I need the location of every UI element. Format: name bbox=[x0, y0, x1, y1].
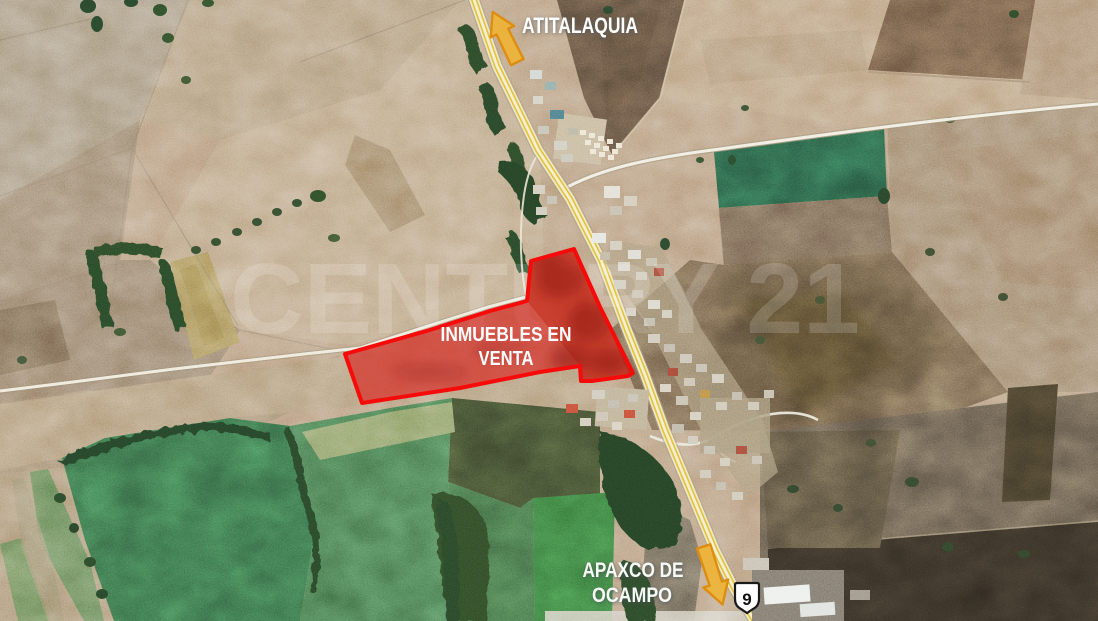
svg-text:OCAMPO: OCAMPO bbox=[592, 584, 672, 607]
svg-text:9: 9 bbox=[742, 590, 751, 609]
svg-text:INMUEBLES EN: INMUEBLES EN bbox=[441, 324, 572, 346]
svg-text:ATITALAQUIA: ATITALAQUIA bbox=[522, 13, 638, 38]
svg-text:VENTA: VENTA bbox=[479, 348, 534, 370]
svg-text:APAXCO DE: APAXCO DE bbox=[583, 559, 684, 582]
